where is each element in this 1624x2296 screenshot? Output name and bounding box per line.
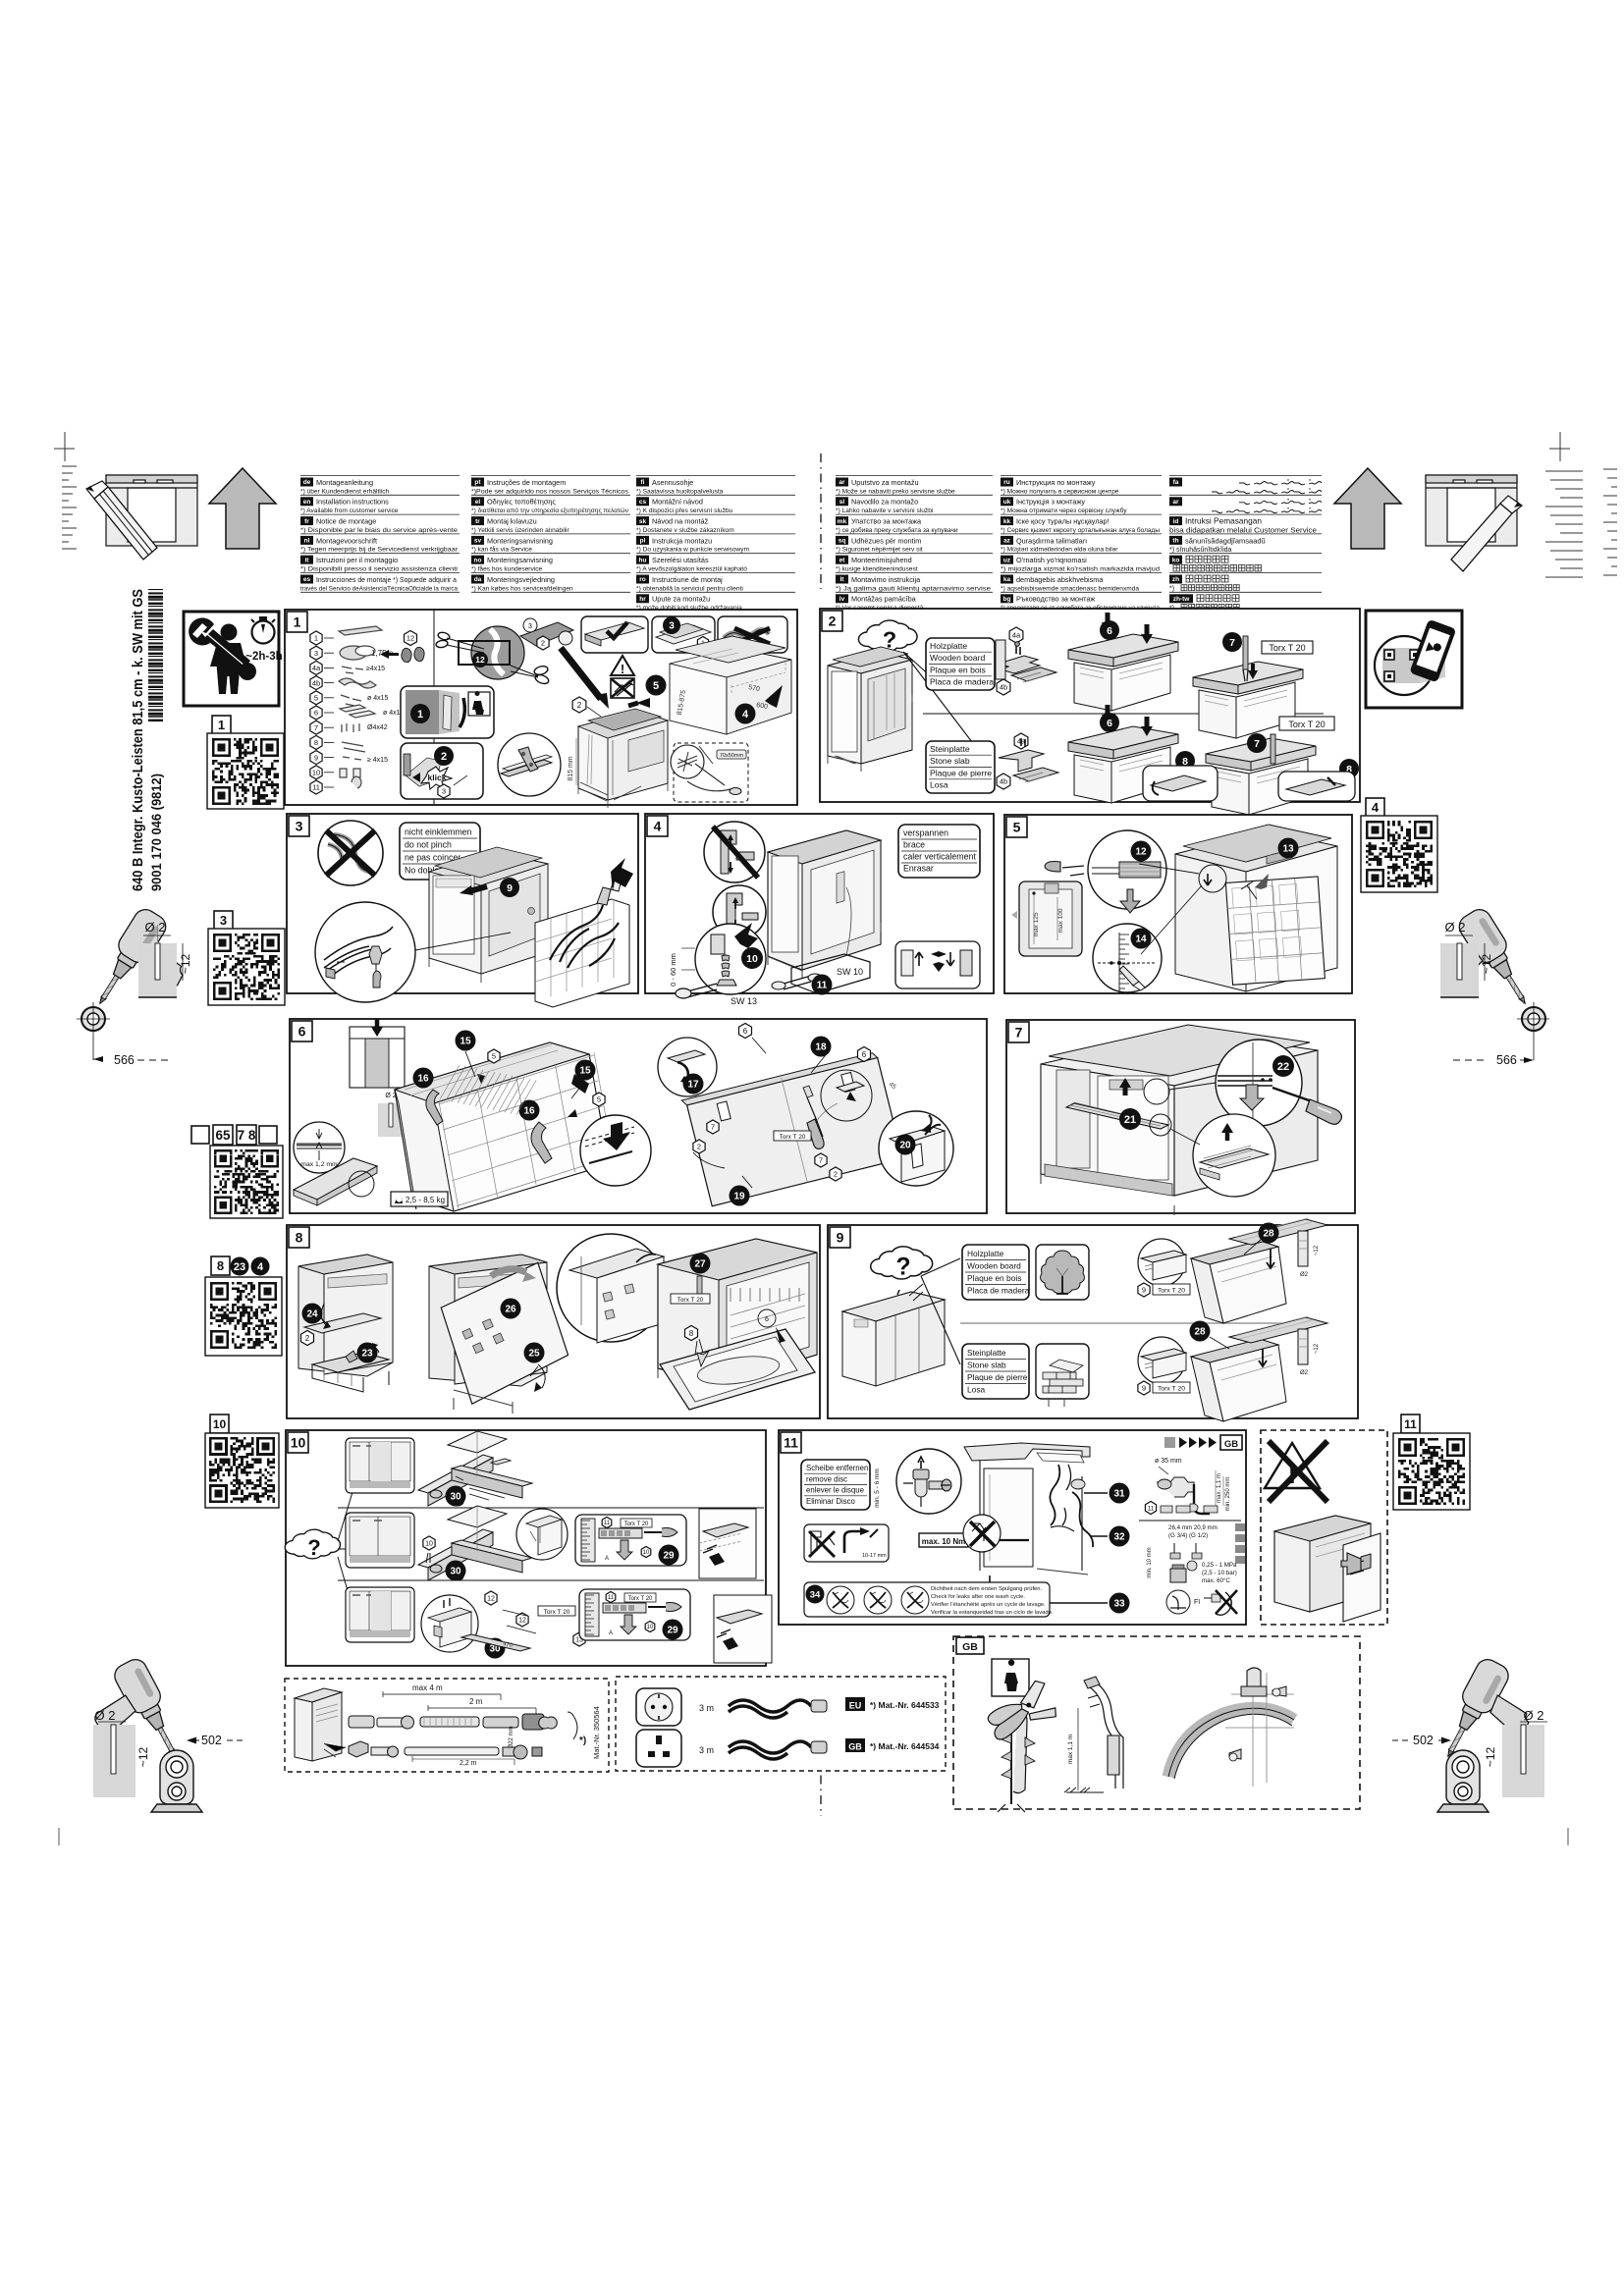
svg-text:Інструкція з монтажу: Інструкція з монтажу [1016, 498, 1085, 507]
svg-text:4b: 4b [1000, 777, 1007, 786]
svg-text:*) fåes hos kundeservice: *) fåes hos kundeservice [471, 565, 543, 573]
svg-text:Инструкция по монтажу: Инструкция по монтажу [1016, 478, 1096, 487]
svg-text:2,2 m: 2,2 m [460, 1760, 477, 1767]
svg-text:*) Disponible par le biais du: *) Disponible par le biais du service ap… [300, 527, 458, 534]
svg-text:*) Do uzyskania w punkcie serw: *) Do uzyskania w punkcie serwisowym [636, 547, 750, 554]
svg-text:ar: ar [1172, 499, 1179, 506]
svg-text:Installation instructions: Installation instructions [316, 498, 389, 507]
svg-text:566: 566 [114, 1053, 135, 1067]
svg-text:*) Можна отримати через сервіс: *) Можна отримати через сервісну службу [1001, 507, 1127, 514]
svg-text:max 1,1 m: max 1,1 m [1067, 1735, 1074, 1764]
svg-text:31: 31 [1113, 1489, 1125, 1500]
svg-text:Torx T 20: Torx T 20 [1158, 1386, 1185, 1393]
svg-text:min. 10 mm: min. 10 mm [1147, 1547, 1153, 1577]
svg-text:≥ 4x15: ≥ 4x15 [367, 757, 388, 764]
svg-text:2: 2 [305, 1334, 310, 1343]
svg-text:815 mm: 815 mm [568, 756, 574, 780]
svg-text:Montaj kılavuzu: Montaj kılavuzu [487, 517, 537, 526]
svg-text:GB: GB [962, 1641, 978, 1653]
svg-text:28: 28 [1263, 1229, 1274, 1240]
svg-text:Check for leaks after one wash: Check for leaks after one wash cycle. [931, 1594, 1025, 1600]
svg-text:7: 7 [711, 1123, 715, 1132]
svg-text:Szerelési utasítás: Szerelési utasítás [652, 556, 709, 564]
svg-text:14: 14 [1135, 934, 1147, 945]
svg-text:ø 35 mm: ø 35 mm [1155, 1458, 1182, 1465]
svg-text:max 1,2 mm: max 1,2 mm [300, 1161, 338, 1168]
svg-text:Упатство за монтажа: Упатство за монтажа [851, 517, 922, 526]
svg-text:Steinplatte: Steinplatte [930, 744, 970, 754]
svg-text:17: 17 [687, 1080, 699, 1091]
svg-text:3: 3 [442, 787, 446, 796]
svg-text:2: 2 [829, 614, 837, 629]
svg-text:*) Lahko nabavite v servisni s: *) Lahko nabavite v servisni službi [836, 507, 934, 514]
svg-text:Torx T 20: Torx T 20 [544, 1609, 570, 1616]
svg-text:Montāžas pamācība: Montāžas pamācība [851, 595, 917, 604]
svg-text:Udhëzues për montim: Udhëzues për montim [851, 536, 921, 545]
svg-text:*) Siguronet nëpërmjet serv si: *) Siguronet nëpërmjet serv sit [836, 547, 923, 554]
svg-text:Enrasar: Enrasar [903, 864, 934, 874]
svg-text:~12: ~12 [1484, 1746, 1497, 1767]
svg-text:*) über Kundendienst erhältlic: *) über Kundendienst erhältlich [300, 488, 390, 495]
svg-text:4: 4 [257, 1261, 264, 1273]
svg-text:9: 9 [1142, 1384, 1146, 1393]
svg-text:SW 13: SW 13 [731, 996, 757, 1006]
svg-text:ka: ka [1003, 576, 1011, 583]
svg-text:*) kusige klienditeenindusest: *) kusige klienditeenindusest [836, 566, 918, 573]
svg-text:4b: 4b [1000, 683, 1007, 692]
svg-text:12: 12 [1135, 847, 1147, 858]
svg-text:sl: sl [839, 499, 845, 506]
svg-text:dembagebis abskhvebisma: dembagebis abskhvebisma [1016, 575, 1104, 584]
svg-text:2: 2 [577, 701, 582, 710]
svg-text:0,25 - 1 MPa: 0,25 - 1 MPa [1202, 1562, 1237, 1569]
svg-text:zh: zh [1172, 576, 1179, 583]
svg-text:az: az [1003, 538, 1011, 545]
svg-text:*) Müştəri xidmətlərindən əldə: *) Müştəri xidmətlərindən əldə oluna bil… [1001, 547, 1118, 554]
svg-text:18: 18 [815, 1042, 827, 1053]
svg-text:*) sĩnuhăsũnĩtidkĩida: *) sĩnuhăsũnĩtidkĩida [1169, 547, 1232, 554]
svg-text:es: es [303, 576, 311, 583]
svg-text:4: 4 [1372, 800, 1380, 815]
svg-text:1: 1 [314, 634, 318, 643]
svg-text:verspannen: verspannen [903, 828, 948, 838]
svg-text:11: 11 [312, 783, 320, 792]
svg-text:9001 170 046 (9812): 9001 170 046 (9812) [149, 774, 164, 891]
svg-text:Montavimo instrukcija: Montavimo instrukcija [851, 575, 921, 584]
svg-text:8: 8 [314, 738, 318, 747]
svg-text:Dichtheit nach dem ersten Spül: Dichtheit nach dem ersten Spülgang prüfe… [931, 1586, 1042, 1592]
svg-text:21: 21 [1124, 1114, 1136, 1126]
svg-text:Upute za montažu: Upute za montažu [652, 595, 710, 604]
svg-text:1: 1 [294, 614, 301, 630]
svg-text:10: 10 [647, 1625, 654, 1630]
svg-text:A: A [609, 1630, 613, 1636]
svg-text:6: 6 [298, 1024, 306, 1040]
svg-text:Іске қосу туралы нұсқаулар!: Іске қосу туралы нұсқаулар! [1016, 517, 1110, 526]
svg-text:6: 6 [765, 1316, 769, 1323]
svg-text:Losa: Losa [967, 1385, 986, 1395]
svg-text:A: A [605, 1556, 609, 1562]
svg-text:*) διατίθεται από την υπηρεσία: *) διατίθεται από την υπηρεσία εξυπηρέτη… [471, 507, 629, 514]
svg-text:de: de [303, 479, 311, 486]
svg-text:Holzplatte: Holzplatte [930, 641, 967, 651]
svg-text:4b: 4b [312, 678, 320, 687]
svg-text:fi: fi [641, 479, 645, 486]
svg-text:6: 6 [1107, 625, 1112, 637]
svg-text:ar: ar [839, 479, 845, 486]
svg-text:11: 11 [1148, 1505, 1155, 1512]
svg-text:Stone slab: Stone slab [967, 1361, 1006, 1370]
svg-text:~12: ~12 [1480, 953, 1493, 974]
svg-text:max. 10 Nm: max. 10 Nm [922, 1537, 965, 1546]
svg-text:*) се добива преку службата за: *) се добива преку службата за купувачи [836, 526, 958, 534]
svg-text:O'rnatish yo'riqnomasi: O'rnatish yo'riqnomasi [1016, 556, 1087, 564]
svg-text:*) Mat.-Nr. 644533: *) Mat.-Nr. 644533 [870, 1700, 940, 1710]
svg-text:13: 13 [1282, 844, 1294, 855]
svg-text:Verificar la estanqueidad tras: Verificar la estanqueidad tras un ciclo … [931, 1610, 1054, 1616]
svg-text:max 100: max 100 [1057, 908, 1064, 933]
svg-text:tr: tr [475, 518, 480, 525]
svg-text:*): *) [1169, 586, 1174, 593]
svg-text:11: 11 [817, 981, 828, 991]
svg-text:24: 24 [306, 1309, 318, 1320]
svg-text:*) Available from customer ser: *) Available from customer service [300, 507, 399, 514]
svg-text:*) Kan købes hos serviceafdeli: *) Kan købes hos serviceafdelingen [471, 585, 573, 592]
svg-text:70x50mm: 70x50mm [720, 753, 744, 759]
svg-text:*)Pode ser adquirido nos nosso: *)Pode ser adquirido nos nossos Serviços… [471, 488, 629, 495]
svg-text:hu: hu [639, 557, 647, 563]
svg-text:Torx T 20: Torx T 20 [1269, 643, 1305, 653]
svg-text:2: 2 [697, 1143, 701, 1151]
svg-text:Intruksi Pemasangan: Intruksi Pemasangan [1185, 516, 1262, 526]
svg-text:20: 20 [899, 1141, 911, 1151]
svg-text:Monteringsanvisning: Monteringsanvisning [487, 556, 553, 564]
svg-text:30: 30 [450, 1492, 461, 1503]
svg-text:pt: pt [474, 479, 481, 486]
svg-text:502: 502 [201, 1734, 222, 1747]
svg-text:4a: 4a [1012, 631, 1021, 640]
svg-text:Torx T 20: Torx T 20 [624, 1522, 649, 1527]
svg-text:?: ? [895, 1255, 910, 1281]
svg-text:Instrukcja montazu: Instrukcja montazu [652, 536, 712, 545]
svg-text:7: 7 [314, 723, 318, 732]
svg-text:6: 6 [862, 1050, 867, 1059]
svg-text:10-17 mm: 10-17 mm [862, 1553, 887, 1559]
svg-text:2: 2 [834, 1170, 838, 1179]
svg-text:Torx T 20: Torx T 20 [628, 1596, 653, 1602]
svg-text:~2h-3h: ~2h-3h [245, 651, 282, 663]
svg-text:ro: ro [639, 576, 646, 583]
svg-text:*) Može se nabaviti preko serv: *) Može se nabaviti preko servisne služb… [836, 488, 955, 495]
svg-text:Montážní návod: Montážní návod [652, 498, 703, 507]
svg-text:bg: bg [1003, 596, 1011, 603]
svg-text:Placa de madera: Placa de madera [967, 1286, 1030, 1296]
svg-text:bisa didapatkan melalui Custom: bisa didapatkan melalui Customer Service [1169, 525, 1317, 534]
svg-text:Torx T 20: Torx T 20 [1288, 720, 1325, 729]
svg-text:sq: sq [839, 538, 846, 545]
svg-text:7 8: 7 8 [238, 1128, 256, 1143]
svg-text:!: ! [621, 662, 624, 676]
svg-text:23: 23 [234, 1261, 245, 1273]
svg-text:Quraşdırma təlimatları: Quraşdırma təlimatları [1016, 536, 1087, 545]
svg-text:3: 3 [314, 649, 318, 658]
svg-text:10: 10 [213, 1417, 227, 1431]
svg-text:29: 29 [663, 1551, 675, 1562]
svg-text:9: 9 [1142, 1286, 1146, 1295]
svg-text:uz: uz [1003, 557, 1011, 563]
svg-text:Instruções de montagem: Instruções de montagem [487, 478, 566, 487]
svg-text:11: 11 [608, 1595, 615, 1601]
svg-text:Placa de madera: Placa de madera [930, 677, 994, 687]
svg-text:9: 9 [507, 882, 513, 894]
svg-text:10: 10 [425, 1541, 433, 1548]
svg-text:da: da [474, 576, 482, 583]
svg-text:*) Сервис қызмет көрсету ортал: *) Сервис қызмет көрсету орталығынан алу… [1001, 526, 1160, 534]
svg-text:Stone slab: Stone slab [930, 756, 970, 766]
svg-text:1: 1 [218, 718, 225, 732]
svg-text:Plaque de pierre: Plaque de pierre [967, 1372, 1028, 1382]
svg-text:15: 15 [460, 1037, 471, 1047]
svg-text:*) K dispozici přes servisní s: *) K dispozici přes servisní službu [636, 507, 733, 514]
svg-text:Torx T 20: Torx T 20 [677, 1297, 704, 1304]
svg-text:566: 566 [1496, 1053, 1517, 1067]
svg-text:Holzplatte: Holzplatte [967, 1249, 1004, 1258]
svg-text:Navodilo za montažo: Navodilo za montažo [851, 498, 918, 507]
svg-text:caler verticalement: caler verticalement [903, 852, 976, 862]
svg-text:11: 11 [604, 1521, 611, 1526]
svg-text:el: el [475, 499, 481, 506]
svg-text:12: 12 [475, 655, 485, 665]
svg-text:11: 11 [1404, 1417, 1417, 1431]
svg-text:1: 1 [417, 709, 423, 721]
svg-text:ø 4x15: ø 4x15 [367, 695, 389, 702]
svg-text:Monteringsanvisning: Monteringsanvisning [487, 536, 553, 545]
svg-text:GB: GB [1224, 1439, 1238, 1450]
svg-text:8: 8 [217, 1258, 224, 1273]
svg-text:Wooden board: Wooden board [967, 1261, 1021, 1271]
svg-text:3 m: 3 m [699, 1703, 714, 1713]
svg-text:640 B Integr. Kusto-Leisten 81: 640 B Integr. Kusto-Leisten 81,5 cm - k.… [131, 589, 146, 891]
svg-text:Ø 2: Ø 2 [1524, 1708, 1544, 1723]
svg-text:Monteerimisjuhend: Monteerimisjuhend [851, 556, 912, 564]
svg-text:(G 3/4) (G 1/2): (G 3/4) (G 1/2) [1168, 1532, 1208, 1539]
svg-text:Notice de montage: Notice de montage [316, 517, 376, 526]
svg-text:28: 28 [1194, 1327, 1206, 1338]
svg-text:29: 29 [667, 1626, 678, 1636]
svg-text:zh-tw: zh-tw [1173, 596, 1191, 603]
svg-text:ru: ru [1003, 479, 1010, 486]
svg-text:EU: EU [849, 1701, 862, 1711]
svg-text:Torx T 20: Torx T 20 [1158, 1288, 1185, 1295]
svg-text:~12: ~12 [179, 953, 192, 974]
svg-text:enlever le disque: enlever le disque [806, 1486, 864, 1495]
svg-text:26: 26 [505, 1305, 516, 1315]
svg-text:2,5 - 8,5 kg: 2,5 - 8,5 kg [406, 1196, 445, 1204]
svg-text:Istruzioni per il montaggio: Istruzioni per il montaggio [316, 556, 398, 564]
svg-text:7: 7 [1254, 738, 1260, 750]
svg-text:5: 5 [314, 694, 318, 703]
svg-text:~12: ~12 [1314, 1343, 1320, 1354]
svg-text:Steinplatte: Steinplatte [967, 1348, 1006, 1358]
svg-text:*) Ją galima gauti klientų apt: *) Ją galima gauti klientų aptarnavimo s… [836, 585, 991, 592]
svg-text:6: 6 [743, 1027, 748, 1036]
svg-text:19: 19 [733, 1192, 745, 1202]
svg-text:max. 60°C: max. 60°C [1202, 1577, 1230, 1584]
svg-text:Ø 2: Ø 2 [145, 920, 166, 934]
svg-text:502: 502 [1413, 1734, 1434, 1747]
svg-text:Návod na montáž: Návod na montáž [652, 517, 709, 526]
svg-text:33: 33 [1113, 1599, 1125, 1610]
svg-text:*) Disponibili presso il servi: *) Disponibili presso il servizio assist… [300, 566, 459, 573]
svg-text:hr: hr [639, 596, 646, 603]
svg-text:no: no [474, 557, 482, 563]
svg-text:*) obtenabilă la serviciul pen: *) obtenabilă la serviciul pentru client… [636, 585, 743, 592]
svg-text:ko: ko [1172, 557, 1180, 563]
svg-text:*) mijozlarga xizmat ko'rsatis: *) mijozlarga xizmat ko'rsatish markazid… [1001, 566, 1160, 573]
svg-text:10: 10 [643, 1550, 650, 1556]
svg-text:Monteringsvejledning: Monteringsvejledning [487, 575, 555, 584]
svg-text:en: en [303, 499, 311, 506]
svg-text:6: 6 [314, 709, 318, 718]
svg-text:fa: fa [1173, 479, 1179, 486]
svg-text:mk: mk [838, 518, 847, 525]
svg-text:GB: GB [848, 1742, 862, 1752]
svg-text:(2,5 - 10 bar): (2,5 - 10 bar) [1202, 1570, 1237, 1576]
svg-text:Mat.-Nr. 350564: Mat.-Nr. 350564 [592, 1706, 601, 1759]
svg-text:6: 6 [1107, 718, 1112, 729]
svg-text:~12: ~12 [136, 1746, 150, 1767]
svg-text:Plaque en bois: Plaque en bois [967, 1273, 1021, 1283]
svg-text:min. 250 mm: min. 250 mm [1225, 1477, 1231, 1512]
svg-text:Ръководство за монтаж: Ръководство за монтаж [1016, 595, 1095, 604]
svg-text:Ø2: Ø2 [1300, 1370, 1309, 1376]
svg-text:SW 10: SW 10 [837, 967, 863, 977]
svg-text:fr: fr [304, 518, 309, 525]
svg-text:sk: sk [639, 518, 647, 525]
svg-text:23: 23 [361, 1349, 373, 1360]
svg-text:3: 3 [669, 621, 675, 632]
svg-text:nicht einklemmen: nicht einklemmen [405, 827, 472, 836]
svg-text:Οδηγίες τοποθέτησης: Οδηγίες τοποθέτησης [487, 498, 556, 507]
svg-text:lv: lv [839, 596, 845, 603]
svg-text:10: 10 [312, 769, 320, 777]
svg-text:12: 12 [487, 1596, 495, 1603]
svg-text:*): *) [579, 1735, 586, 1746]
svg-text:th: th [1172, 538, 1178, 545]
svg-text:2 m: 2 m [469, 1697, 483, 1706]
svg-text:Uputstvo za montažu: Uputstvo za montažu [851, 478, 919, 487]
svg-text:16: 16 [523, 1106, 535, 1117]
svg-text:remove disc: remove disc [806, 1474, 847, 1483]
svg-text:do not pinch: do not pinch [405, 839, 452, 849]
svg-text:id: id [1173, 518, 1179, 525]
svg-text:3: 3 [220, 913, 227, 928]
svg-text:25: 25 [528, 1349, 540, 1360]
svg-text:22: 22 [1277, 1061, 1289, 1073]
svg-text:Asennusohje: Asennusohje [652, 478, 693, 487]
svg-text:4: 4 [742, 709, 749, 721]
svg-text:*) Mat.-Nr. 644534: *) Mat.-Nr. 644534 [870, 1741, 940, 1751]
svg-text:Ø2: Ø2 [1300, 1272, 1309, 1278]
svg-text:5: 5 [492, 1052, 496, 1061]
svg-text:Instrucciones de montaje *): Instrucciones de montaje *) Sopuede adqu… [316, 575, 458, 584]
svg-text:7: 7 [1229, 637, 1235, 649]
svg-text:través del Servicio deAsistenc: través del Servicio deAsistenciaTécnicaO… [300, 585, 458, 592]
svg-text:0 - 60 mm: 0 - 60 mm [669, 953, 677, 987]
svg-text:kk: kk [1003, 518, 1011, 525]
svg-text:16: 16 [417, 1074, 429, 1085]
svg-text:Plaque de pierre: Plaque de pierre [930, 768, 992, 777]
svg-text:*) aqsebisbiswemde smacdenasc: *) aqsebisbiswemde smacdenasc bemidenxmd… [1001, 585, 1139, 592]
svg-text:Ø4x42: Ø4x42 [367, 724, 388, 731]
svg-text:2: 2 [541, 639, 545, 648]
svg-text:Torx T 20: Torx T 20 [780, 1134, 806, 1141]
svg-text:Vérifier l’étanchéité après un: Vérifier l’étanchéité après un cycle de … [931, 1602, 1046, 1608]
svg-text:Eliminar Disco: Eliminar Disco [806, 1497, 855, 1506]
svg-text:≥4x15: ≥4x15 [366, 666, 385, 672]
svg-text:26,4 mm 20,9 mm: 26,4 mm 20,9 mm [1168, 1524, 1218, 1531]
svg-text:2: 2 [441, 751, 447, 763]
svg-text:*) kan fås via Service: *) kan fås via Service [471, 546, 532, 554]
svg-text:3: 3 [296, 819, 303, 834]
svg-text:*) Yetkili servis üzerinden al: *) Yetkili servis üzerinden alınabilir [471, 527, 569, 534]
svg-text:27: 27 [694, 1259, 706, 1270]
svg-text:sv: sv [474, 538, 482, 545]
svg-text:?: ? [307, 1535, 321, 1560]
svg-text:3 m: 3 m [699, 1745, 714, 1755]
svg-text:uk: uk [1003, 499, 1011, 506]
svg-text:15: 15 [579, 1066, 591, 1077]
svg-text:9: 9 [314, 753, 318, 762]
svg-text:min. 5 - 6 mm: min. 5 - 6 mm [874, 1468, 881, 1508]
svg-text:12: 12 [406, 634, 414, 643]
svg-text:~12: ~12 [1314, 1245, 1320, 1255]
svg-text:10: 10 [746, 953, 758, 965]
svg-text:sănunĩsădagdjĩamsaadũ: sănunĩsădagdjĩamsaadũ [1185, 537, 1266, 546]
svg-text:Montageanleitung: Montageanleitung [316, 478, 373, 487]
svg-text:34: 34 [810, 1589, 821, 1600]
svg-text:et: et [839, 557, 846, 563]
svg-text:FI: FI [1194, 1599, 1200, 1606]
svg-text:30: 30 [450, 1567, 461, 1577]
svg-text:Montagevoorschrift: Montagevoorschrift [316, 536, 377, 545]
svg-text:4a: 4a [312, 664, 321, 672]
svg-text:nl: nl [304, 538, 310, 545]
svg-text:Ø 2: Ø 2 [385, 1093, 396, 1099]
svg-text:Ø 2: Ø 2 [1445, 920, 1466, 934]
svg-text:Instructiune de montaj: Instructiune de montaj [652, 575, 723, 584]
svg-text:5: 5 [597, 1095, 601, 1104]
svg-text:max 4 m: max 4 m [412, 1683, 443, 1692]
svg-text:Plaque en bois: Plaque en bois [930, 665, 986, 674]
svg-text:klick: klick [428, 773, 447, 782]
svg-text:12: 12 [518, 1618, 526, 1625]
svg-text:pl: pl [640, 538, 646, 545]
svg-text:7: 7 [1015, 1025, 1023, 1041]
svg-text:9: 9 [837, 1230, 844, 1246]
svg-text:65: 65 [215, 1128, 231, 1143]
svg-text:Losa: Losa [930, 780, 948, 790]
svg-text:4: 4 [654, 819, 662, 834]
svg-text:Ø 2: Ø 2 [95, 1708, 116, 1723]
svg-text:10: 10 [291, 1435, 306, 1451]
svg-text:*) Dostanete v službe zákazník: *) Dostanete v službe zákazníkom [636, 527, 734, 534]
svg-text:32: 32 [1113, 1532, 1125, 1543]
svg-text:*) A vevőszolgálaton keresztül: *) A vevőszolgálaton keresztül kapható [636, 566, 747, 573]
svg-text:5: 5 [653, 680, 659, 692]
svg-text:8: 8 [689, 1329, 694, 1338]
svg-text:Ø22 mm: Ø22 mm [509, 1726, 514, 1748]
